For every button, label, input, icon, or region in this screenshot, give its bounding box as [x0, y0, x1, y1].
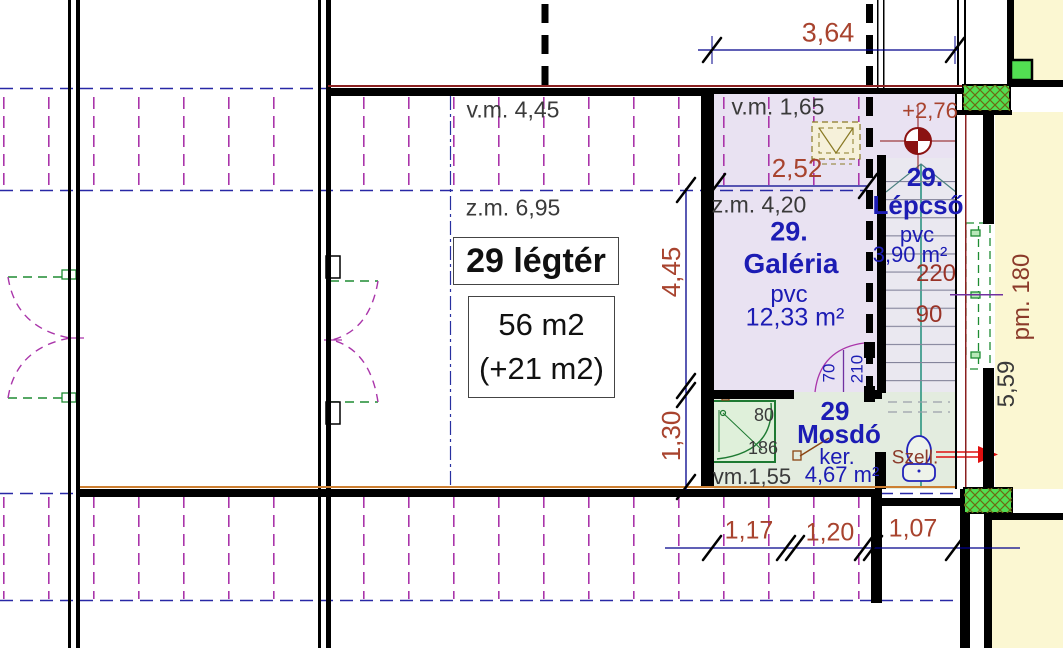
galeria-area: 12,33 m² [746, 306, 845, 331]
door-swing-left-wall [8, 270, 84, 402]
level-label: +2,76 [902, 100, 958, 122]
dim-bottom-1: 1,17 [725, 519, 774, 544]
legter-title-box: 29 légtér [453, 237, 619, 285]
door-swing-inner-wall [324, 256, 378, 424]
door-width-label: 70 [821, 364, 838, 383]
legter-area: 56 m2 [498, 307, 584, 343]
galeria-vm-note: v.m. 1,65 [732, 96, 825, 119]
legter-area-extra: (+21 m2) [479, 351, 604, 387]
shower-width: 80 [754, 406, 774, 424]
lepcso-number: 29. [907, 164, 943, 190]
vent-label: Szell. [892, 449, 938, 468]
galeria-number: 29. [770, 219, 808, 246]
dim-room-height: 4,45 [658, 247, 684, 298]
galeria-name: Galéria [744, 250, 839, 278]
mosdo-vm-note: vm.1,55 [713, 466, 791, 488]
mosdo-area: 4,67 m² [805, 464, 880, 486]
dim-galeria-width: 2,52 [772, 155, 823, 181]
dim-stair-width: 90 [916, 303, 943, 327]
dim-bottom-3: 1,07 [889, 517, 938, 542]
dim-right-height: 5,59 [995, 361, 1019, 408]
floor-plan: 3,64 v.m. 4,45 z.m. 6,95 29 légtér 56 m2… [0, 0, 1063, 648]
legter-zm-note: z.m. 6,95 [466, 197, 561, 220]
dim-lower-height: 1,30 [658, 411, 684, 462]
parapet-label: pm. 180 [1010, 254, 1034, 341]
window-symbol-right [966, 223, 990, 369]
legter-area-box: 56 m2 (+21 m2) [468, 296, 615, 398]
shower-depth: 186 [748, 439, 778, 457]
dim-stair-run: 220 [916, 262, 956, 286]
legter-vm-note: v.m. 4,45 [467, 99, 560, 122]
dim-bottom-2: 1,20 [806, 521, 855, 546]
legter-title: 29 légtér [466, 242, 606, 281]
galeria-zm-note: z.m. 4,20 [712, 194, 807, 217]
lepcso-name: Lépcső [872, 192, 963, 218]
dim-top-width: 3,64 [802, 20, 855, 47]
door-height-label: 210 [849, 355, 866, 383]
